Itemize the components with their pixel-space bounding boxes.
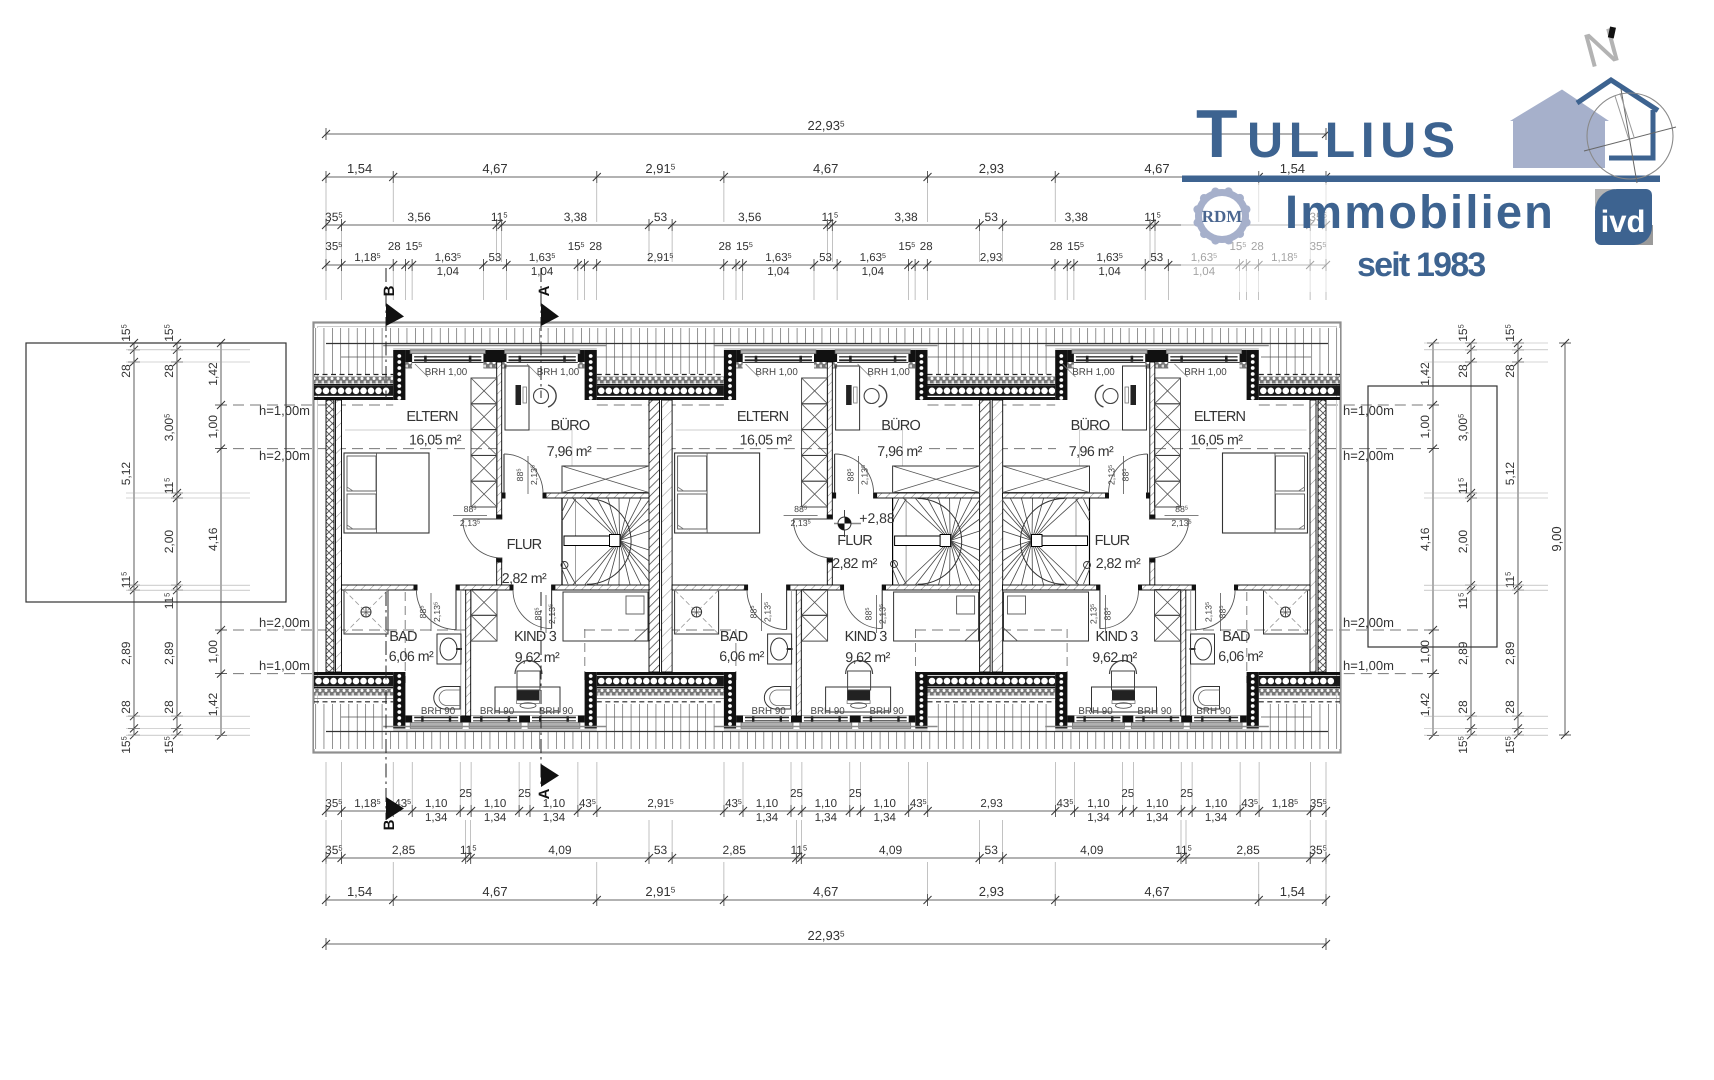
- svg-text:4,16: 4,16: [1418, 527, 1432, 551]
- svg-text:2,82 m²: 2,82 m²: [1096, 556, 1141, 572]
- svg-text:2,85: 2,85: [392, 843, 416, 857]
- svg-text:1,34: 1,34: [815, 812, 838, 824]
- svg-text:53: 53: [654, 210, 668, 224]
- svg-text:BRH 1,00: BRH 1,00: [867, 367, 910, 378]
- svg-text:1,34: 1,34: [1146, 812, 1169, 824]
- svg-text:BRH 1,00: BRH 1,00: [425, 367, 468, 378]
- svg-text:28: 28: [1503, 364, 1517, 378]
- svg-text:2,00: 2,00: [1456, 530, 1470, 554]
- svg-text:RDM: RDM: [1202, 207, 1243, 226]
- svg-text:1,00: 1,00: [206, 640, 220, 664]
- svg-text:1,34: 1,34: [425, 812, 448, 824]
- svg-text:4,67: 4,67: [482, 161, 507, 176]
- svg-text:1,00: 1,00: [1418, 640, 1432, 664]
- svg-text:3,56: 3,56: [407, 210, 431, 224]
- svg-text:1,54: 1,54: [1280, 884, 1305, 899]
- svg-text:2,89: 2,89: [119, 641, 133, 665]
- svg-text:53: 53: [489, 252, 502, 264]
- svg-text:h=1,00m: h=1,00m: [259, 403, 310, 418]
- svg-text:25: 25: [790, 788, 803, 800]
- svg-text:2,00: 2,00: [162, 530, 176, 554]
- svg-text:seit 1983: seit 1983: [1357, 246, 1485, 284]
- svg-text:28: 28: [119, 364, 133, 378]
- svg-text:5,12: 5,12: [1503, 462, 1517, 486]
- svg-text:3,005: 3,005: [162, 414, 176, 441]
- svg-text:BÜRO: BÜRO: [551, 417, 590, 434]
- svg-text:1,04: 1,04: [767, 266, 790, 278]
- svg-text:4,67: 4,67: [813, 884, 838, 899]
- svg-text:BRH 1,00: BRH 1,00: [1072, 367, 1115, 378]
- svg-text:6,06 m²: 6,06 m²: [1218, 649, 1263, 665]
- svg-text:16,05 m²: 16,05 m²: [1191, 433, 1244, 449]
- svg-text:4,67: 4,67: [1144, 161, 1169, 176]
- svg-text:9,62 m²: 9,62 m²: [1092, 650, 1137, 666]
- svg-text:2,85: 2,85: [1236, 843, 1260, 857]
- svg-text:1,54: 1,54: [347, 884, 372, 899]
- svg-text:28: 28: [119, 700, 133, 714]
- svg-text:3,38: 3,38: [1065, 210, 1089, 224]
- svg-text:ELTERN: ELTERN: [737, 409, 789, 425]
- svg-text:4,09: 4,09: [1080, 843, 1104, 857]
- svg-text:28: 28: [162, 364, 176, 378]
- svg-text:FLUR: FLUR: [837, 533, 872, 549]
- svg-text:BAD: BAD: [720, 629, 748, 645]
- svg-text:3,005: 3,005: [1456, 414, 1470, 441]
- svg-text:1,10: 1,10: [815, 798, 837, 810]
- svg-text:BAD: BAD: [1222, 629, 1250, 645]
- svg-text:25: 25: [518, 788, 531, 800]
- svg-text:9,00: 9,00: [1549, 526, 1564, 551]
- svg-text:ELTERN: ELTERN: [406, 409, 458, 425]
- svg-text:BRH 1,00: BRH 1,00: [1184, 367, 1227, 378]
- svg-text:BRH 90: BRH 90: [751, 706, 786, 717]
- svg-text:1,42: 1,42: [1418, 362, 1432, 386]
- svg-text:BRH 90: BRH 90: [539, 706, 574, 717]
- svg-text:KIND 3: KIND 3: [1096, 629, 1139, 645]
- svg-text:BRH 90: BRH 90: [1137, 706, 1172, 717]
- svg-text:FLUR: FLUR: [507, 537, 542, 553]
- svg-text:28: 28: [1503, 700, 1517, 714]
- svg-text:2,85: 2,85: [723, 843, 747, 857]
- svg-text:1,42: 1,42: [1418, 692, 1432, 716]
- svg-text:A: A: [536, 788, 553, 799]
- svg-text:+2,88: +2,88: [859, 510, 895, 526]
- svg-text:BRH 90: BRH 90: [1078, 706, 1113, 717]
- svg-text:28: 28: [162, 700, 176, 714]
- svg-text:7,96 m²: 7,96 m²: [1069, 444, 1114, 460]
- svg-text:ivd: ivd: [1601, 204, 1646, 239]
- svg-text:2,89: 2,89: [1456, 641, 1470, 665]
- svg-text:4,67: 4,67: [1144, 884, 1169, 899]
- svg-text:16,05 m²: 16,05 m²: [740, 433, 793, 449]
- svg-text:h=1,00m: h=1,00m: [1343, 658, 1394, 673]
- svg-text:1,34: 1,34: [1205, 812, 1228, 824]
- svg-text:5,12: 5,12: [119, 462, 133, 486]
- svg-text:2,93: 2,93: [980, 252, 1002, 264]
- svg-text:2,89: 2,89: [1503, 641, 1517, 665]
- svg-text:53: 53: [819, 252, 832, 264]
- svg-text:1,00: 1,00: [1418, 415, 1432, 439]
- svg-text:BÜRO: BÜRO: [881, 417, 920, 434]
- svg-text:KIND 3: KIND 3: [845, 629, 888, 645]
- svg-text:25: 25: [849, 788, 862, 800]
- svg-text:9,62 m²: 9,62 m²: [515, 650, 560, 666]
- svg-text:BRH 90: BRH 90: [869, 706, 904, 717]
- svg-text:7,96 m²: 7,96 m²: [547, 444, 592, 460]
- svg-text:1,10: 1,10: [1087, 798, 1109, 810]
- svg-text:1,54: 1,54: [347, 161, 372, 176]
- svg-text:9,62 m²: 9,62 m²: [845, 650, 890, 666]
- svg-text:1,42: 1,42: [206, 362, 220, 386]
- svg-text:h=2,00m: h=2,00m: [259, 448, 310, 463]
- svg-text:1,34: 1,34: [484, 812, 507, 824]
- svg-text:1,10: 1,10: [874, 798, 896, 810]
- svg-text:53: 53: [985, 843, 999, 857]
- svg-text:25: 25: [459, 788, 472, 800]
- svg-text:6,06 m²: 6,06 m²: [719, 649, 764, 665]
- svg-text:1,42: 1,42: [206, 692, 220, 716]
- svg-text:ELTERN: ELTERN: [1194, 409, 1246, 425]
- svg-text:4,09: 4,09: [879, 843, 903, 857]
- svg-text:1,34: 1,34: [543, 812, 566, 824]
- svg-text:1,10: 1,10: [425, 798, 447, 810]
- svg-text:3,38: 3,38: [894, 210, 918, 224]
- svg-text:22,935: 22,935: [807, 928, 845, 943]
- svg-text:28: 28: [719, 241, 732, 253]
- svg-text:2,82 m²: 2,82 m²: [502, 571, 547, 587]
- svg-text:BRH 1,00: BRH 1,00: [537, 367, 580, 378]
- svg-text:BÜRO: BÜRO: [1071, 417, 1110, 434]
- svg-text:B: B: [381, 285, 398, 296]
- svg-text:28: 28: [388, 241, 401, 253]
- svg-text:BRH 90: BRH 90: [480, 706, 515, 717]
- svg-text:h=1,00m: h=1,00m: [259, 658, 310, 673]
- svg-text:2,93: 2,93: [979, 884, 1004, 899]
- svg-text:28: 28: [920, 241, 933, 253]
- svg-text:28: 28: [1050, 241, 1063, 253]
- svg-text:T: T: [1196, 96, 1238, 172]
- svg-text:1,34: 1,34: [756, 812, 779, 824]
- svg-text:h=2,00m: h=2,00m: [259, 615, 310, 630]
- svg-text:ULLIUS: ULLIUS: [1247, 112, 1461, 168]
- svg-text:1,10: 1,10: [484, 798, 506, 810]
- svg-text:KIND 3: KIND 3: [514, 629, 557, 645]
- svg-text:1,04: 1,04: [437, 266, 460, 278]
- svg-text:BRH 90: BRH 90: [1196, 706, 1231, 717]
- svg-text:BRH 90: BRH 90: [421, 706, 456, 717]
- svg-text:53: 53: [654, 843, 668, 857]
- svg-text:2,89: 2,89: [162, 641, 176, 665]
- svg-text:1,04: 1,04: [1098, 266, 1121, 278]
- svg-text:53: 53: [1150, 252, 1163, 264]
- svg-text:A: A: [536, 285, 553, 296]
- svg-text:BAD: BAD: [389, 629, 417, 645]
- svg-text:3,56: 3,56: [738, 210, 762, 224]
- svg-text:1,10: 1,10: [1146, 798, 1168, 810]
- svg-text:1,10: 1,10: [756, 798, 778, 810]
- svg-text:25: 25: [1121, 788, 1134, 800]
- svg-text:4,09: 4,09: [548, 843, 572, 857]
- svg-text:4,67: 4,67: [813, 161, 838, 176]
- svg-text:53: 53: [985, 210, 999, 224]
- svg-text:FLUR: FLUR: [1095, 533, 1130, 549]
- svg-text:B: B: [381, 819, 398, 830]
- svg-text:6,06 m²: 6,06 m²: [389, 649, 434, 665]
- svg-text:28: 28: [1456, 364, 1470, 378]
- svg-text:28: 28: [1456, 700, 1470, 714]
- svg-text:1,04: 1,04: [531, 266, 554, 278]
- svg-text:1,10: 1,10: [1205, 798, 1227, 810]
- svg-text:2,93: 2,93: [980, 798, 1002, 810]
- svg-text:16,05 m²: 16,05 m²: [409, 433, 462, 449]
- svg-text:7,96 m²: 7,96 m²: [877, 444, 922, 460]
- svg-text:3,38: 3,38: [564, 210, 588, 224]
- svg-text:22,935: 22,935: [807, 118, 845, 133]
- svg-text:1,00: 1,00: [206, 415, 220, 439]
- svg-text:BRH 90: BRH 90: [810, 706, 845, 717]
- svg-text:2,82 m²: 2,82 m²: [832, 556, 877, 572]
- svg-text:4,67: 4,67: [482, 884, 507, 899]
- svg-text:1,04: 1,04: [862, 266, 885, 278]
- svg-text:28: 28: [589, 241, 602, 253]
- svg-text:2,93: 2,93: [979, 161, 1004, 176]
- svg-text:Immobilien: Immobilien: [1285, 185, 1555, 238]
- svg-text:4,16: 4,16: [206, 527, 220, 551]
- svg-text:1,34: 1,34: [874, 812, 897, 824]
- svg-text:1,34: 1,34: [1087, 812, 1110, 824]
- svg-text:BRH 1,00: BRH 1,00: [755, 367, 798, 378]
- svg-text:25: 25: [1180, 788, 1193, 800]
